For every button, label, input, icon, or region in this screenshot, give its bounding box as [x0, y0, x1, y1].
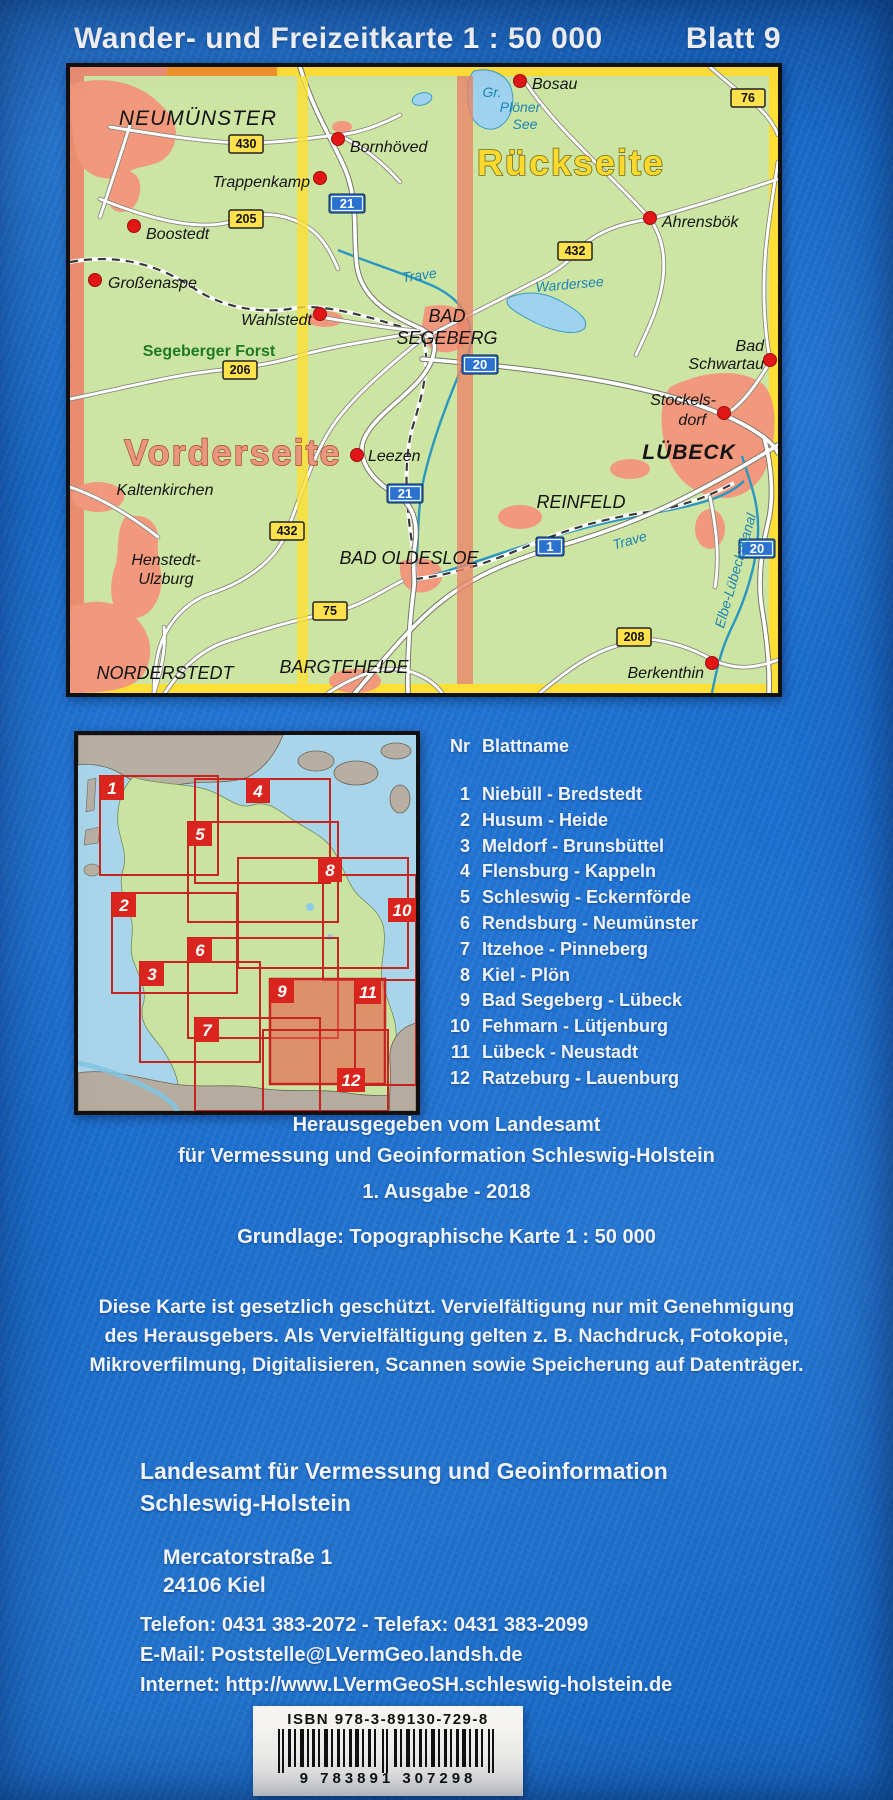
- sheet-index-map: 1 4 5 8 2 10 6 3 9 11 7 12: [74, 731, 420, 1115]
- sheet-list-header-name: Blattname: [482, 736, 569, 757]
- sheet-nr: 4: [432, 859, 482, 885]
- sheet-badge-12: 12: [337, 1068, 365, 1092]
- sheet-name: Bad Segeberg - Lübeck: [482, 988, 682, 1014]
- sheet-list-item-1: 1Niebüll - Bredstedt: [432, 782, 698, 808]
- copyright-line1: Diese Karte ist gesetzlich geschützt. Ve…: [0, 1296, 893, 1319]
- road-badge-430: 430: [229, 135, 263, 153]
- dot-wahlstedt: [314, 308, 327, 321]
- label-segeberger-forst: Segeberger Forst: [143, 343, 276, 360]
- label-rueckseite: Rückseite: [477, 142, 665, 183]
- label-leezen: Leezen: [368, 448, 421, 465]
- road-badge-21-south-label: 21: [398, 486, 412, 501]
- sheet-nr: 8: [432, 963, 482, 989]
- sheet-list-item-2: 2Husum - Heide: [432, 808, 698, 834]
- label-bosau: Bosau: [532, 76, 577, 93]
- sheet-nr: 10: [432, 1014, 482, 1040]
- sheet-badge-6-label: 6: [195, 941, 205, 960]
- lake-wardersee: [507, 293, 586, 332]
- label-ahrensboek: Ahrensbök: [661, 214, 739, 231]
- sheet-list-header-nr: Nr: [432, 736, 482, 757]
- org-name-line1: Landesamt für Vermessung und Geoinformat…: [140, 1458, 668, 1485]
- road-badge-430-label: 430: [236, 137, 257, 151]
- road-badge-1: 1: [536, 537, 564, 556]
- sheet-name: Niebüll - Bredstedt: [482, 782, 642, 808]
- sheet-badge-9: 9: [270, 979, 294, 1003]
- sheet-badge-12-label: 12: [342, 1071, 361, 1090]
- dot-boostedt: [128, 220, 141, 233]
- road-badge-21-north-label: 21: [340, 196, 354, 211]
- sheet-badge-11: 11: [355, 980, 381, 1004]
- road-badge-206: 206: [223, 361, 257, 379]
- road-badge-206-label: 206: [230, 363, 251, 377]
- dot-stockelsdorf: [718, 407, 731, 420]
- sheet-list-item-9: 9Bad Segeberg - Lübeck: [432, 988, 698, 1014]
- road-badge-205-label: 205: [236, 212, 257, 226]
- sheet-number: Blatt 9: [686, 22, 781, 56]
- road-badge-205: 205: [229, 210, 263, 228]
- copyright-line2: des Herausgebers. Als Vervielfältigung g…: [0, 1325, 893, 1348]
- small-lake: [411, 91, 433, 108]
- sheet-badge-5-label: 5: [195, 825, 205, 844]
- org-name-line2: Schleswig-Holstein: [140, 1490, 351, 1517]
- website-line: Internet: http://www.LVermGeoSH.schleswi…: [140, 1674, 672, 1697]
- sheet-name: Schleswig - Eckernförde: [482, 885, 691, 911]
- road-badge-1-label: 1: [546, 539, 553, 554]
- label-trave-lower: Trave: [611, 528, 649, 553]
- sheet-badge-2: 2: [112, 893, 136, 917]
- label-stockelsdorf-1: Stockels-: [650, 392, 716, 409]
- label-bargteheide: BARGTEHEIDE: [279, 657, 409, 677]
- road-badge-432-left: 432: [270, 522, 304, 540]
- email-line: E-Mail: Poststelle@LVermGeo.landsh.de: [140, 1644, 523, 1667]
- road-badge-432-left-label: 432: [277, 524, 298, 538]
- sheet-badge-7: 7: [195, 1018, 219, 1042]
- barcode: [272, 1729, 504, 1773]
- sheet-list-header: Nr Blattname: [432, 736, 569, 757]
- sheet-name: Ratzeburg - Lauenburg: [482, 1066, 679, 1092]
- road-badge-208-label: 208: [624, 630, 645, 644]
- sheet-list-item-11: 11Lübeck - Neustadt: [432, 1040, 698, 1066]
- label-henstedt-2: Ulzburg: [138, 571, 193, 588]
- road-badge-208: 208: [617, 628, 651, 646]
- road-badge-21-south: 21: [387, 484, 423, 503]
- sheet-nr: 2: [432, 808, 482, 834]
- sheet-badge-8-label: 8: [325, 861, 335, 880]
- sheet-nr: 3: [432, 834, 482, 860]
- main-map: 430 205 206 432 75 432 76 208 21 21 20 1…: [66, 63, 782, 697]
- map-back-cover: Wander- und Freizeitkarte 1 : 50 000 Bla…: [0, 0, 893, 1800]
- label-stockelsdorf-2: dorf: [678, 412, 707, 429]
- label-reinfeld: REINFELD: [536, 492, 625, 512]
- publisher-line2: für Vermessung und Geoinformation Schles…: [0, 1145, 893, 1168]
- sheet-badge-6: 6: [188, 938, 212, 962]
- sheet-badge-2-label: 2: [118, 896, 129, 915]
- isbn-label: ISBN 978-3-89130-729-8: [253, 1711, 523, 1728]
- road-badge-432-right: 432: [558, 242, 592, 260]
- sheet-name: Itzehoe - Pinneberg: [482, 937, 648, 963]
- label-norderstedt: NORDERSTEDT: [96, 663, 235, 683]
- sheet-name: Husum - Heide: [482, 808, 608, 834]
- label-bad-schwartau-2: Schwartau: [688, 356, 764, 373]
- label-wahlstedt: Wahlstedt: [241, 312, 312, 329]
- label-neumuenster: NEUMÜNSTER: [119, 107, 277, 130]
- label-berkenthin: Berkenthin: [628, 665, 705, 682]
- street-line: Mercatorstraße 1: [163, 1546, 332, 1570]
- label-gr-ploener-1: Gr.: [483, 84, 502, 100]
- sheet-nr: 9: [432, 988, 482, 1014]
- road-badge-75-label: 75: [323, 604, 337, 618]
- sheet-badge-4-label: 4: [252, 782, 263, 801]
- sheet-list-item-7: 7Itzehoe - Pinneberg: [432, 937, 698, 963]
- edition-line: 1. Ausgabe - 2018: [0, 1181, 893, 1204]
- dot-trappenkamp: [314, 172, 327, 185]
- sheet-name: Fehmarn - Lütjenburg: [482, 1014, 668, 1040]
- phone-line: Telefon: 0431 383-2072 - Telefax: 0431 3…: [140, 1614, 588, 1637]
- sheet-name: Lübeck - Neustadt: [482, 1040, 638, 1066]
- sheet-list-item-12: 12Ratzeburg - Lauenburg: [432, 1066, 698, 1092]
- sheet-name: Flensburg - Kappeln: [482, 859, 656, 885]
- sheet-name: Rendsburg - Neumünster: [482, 911, 698, 937]
- sheet-nr: 7: [432, 937, 482, 963]
- publisher-line1: Herausgegeben vom Landesamt: [0, 1114, 893, 1137]
- road-badge-21-north: 21: [329, 194, 365, 213]
- label-kaltenkirchen: Kaltenkirchen: [117, 482, 214, 499]
- road-badge-432-right-label: 432: [565, 244, 586, 258]
- road-badge-20-west: 20: [462, 355, 498, 374]
- river-trave: [338, 250, 471, 581]
- sheet-nr: 5: [432, 885, 482, 911]
- sheet-badge-3: 3: [140, 962, 164, 986]
- road-badge-76: 76: [731, 89, 765, 107]
- label-bad-oldesloe: BAD OLDESLOE: [339, 548, 479, 568]
- label-bad-schwartau-1: Bad: [736, 338, 766, 355]
- sheet-badge-9-label: 9: [277, 982, 287, 1001]
- label-gr-ploener-3: See: [513, 116, 538, 132]
- label-bad-segeberg-2: SEGEBERG: [396, 328, 497, 348]
- sheet-list-item-6: 6Rendsburg - Neumünster: [432, 911, 698, 937]
- sheet-nr: 1: [432, 782, 482, 808]
- label-gr-ploener-2: Plöner: [500, 99, 542, 115]
- sheet-list-item-4: 4Flensburg - Kappeln: [432, 859, 698, 885]
- sheet-badge-8: 8: [318, 858, 342, 882]
- main-map-graphic: 430 205 206 432 75 432 76 208 21 21 20 1…: [70, 67, 778, 693]
- isbn-digits: 9 783891 307298: [253, 1770, 523, 1787]
- dot-grossenaspe: [89, 274, 102, 287]
- label-bornhoeved: Bornhöved: [350, 139, 428, 156]
- label-trappenkamp: Trappenkamp: [212, 174, 310, 191]
- sheet-list: 1Niebüll - Bredstedt 2Husum - Heide 3Mel…: [432, 782, 698, 1092]
- road-badge-75: 75: [313, 602, 347, 620]
- city-line: 24106 Kiel: [163, 1574, 266, 1598]
- dot-bornhoeved: [332, 133, 345, 146]
- copyright-line3: Mikroverfilmung, Digitalisieren, Scannen…: [0, 1354, 893, 1377]
- label-bad-segeberg-1: BAD: [428, 306, 465, 326]
- sheet-badge-1-label: 1: [107, 779, 116, 798]
- dot-berkenthin: [706, 657, 719, 670]
- label-boostedt: Boostedt: [146, 226, 210, 243]
- dot-ahrensboek: [644, 212, 657, 225]
- sheet-nr: 6: [432, 911, 482, 937]
- dot-leezen: [351, 449, 364, 462]
- sheet-index-graphic: 1 4 5 8 2 10 6 3 9 11 7 12: [78, 735, 416, 1111]
- label-grossenaspe: Großenaspe: [108, 275, 197, 292]
- basis-line: Grundlage: Topographische Karte 1 : 50 0…: [0, 1226, 893, 1249]
- label-luebeck: LÜBECK: [642, 441, 736, 464]
- sheet-badge-1: 1: [100, 776, 124, 800]
- sheet-nr: 11: [432, 1040, 482, 1066]
- label-henstedt-1: Henstedt-: [131, 552, 200, 569]
- sheet-list-item-3: 3Meldorf - Brunsbüttel: [432, 834, 698, 860]
- sheet-nr: 12: [432, 1066, 482, 1092]
- sheet-name: Kiel - Plön: [482, 963, 570, 989]
- sheet-list-item-10: 10Fehmarn - Lütjenburg: [432, 1014, 698, 1040]
- sheet-badge-4: 4: [246, 779, 270, 803]
- sheet-badge-5: 5: [188, 822, 212, 846]
- page-title: Wander- und Freizeitkarte 1 : 50 000: [74, 22, 603, 56]
- sheet-name: Meldorf - Brunsbüttel: [482, 834, 664, 860]
- sheet-badge-11-label: 11: [359, 983, 377, 1002]
- map-labels: NEUMÜNSTER Bornhöved Trappenkamp Boosted…: [96, 76, 765, 683]
- sheet-badge-3-label: 3: [147, 965, 157, 984]
- sheet-list-item-5: 5Schleswig - Eckernförde: [432, 885, 698, 911]
- dot-bad-schwartau: [764, 354, 777, 367]
- sheet-list-item-8: 8Kiel - Plön: [432, 963, 698, 989]
- road-badge-20-east-label: 20: [750, 541, 764, 556]
- sheet-badge-7-label: 7: [202, 1021, 213, 1040]
- label-trave-upper: Trave: [401, 265, 438, 286]
- dot-bosau: [514, 75, 527, 88]
- isbn-box: ISBN 978-3-89130-729-8: [253, 1706, 523, 1796]
- sheet-badge-10-label: 10: [393, 901, 412, 920]
- sheet-badge-10: 10: [388, 898, 416, 922]
- road-badge-76-label: 76: [741, 91, 755, 105]
- label-vorderseite: Vorderseite: [124, 432, 341, 473]
- road-badge-20-west-label: 20: [473, 357, 487, 372]
